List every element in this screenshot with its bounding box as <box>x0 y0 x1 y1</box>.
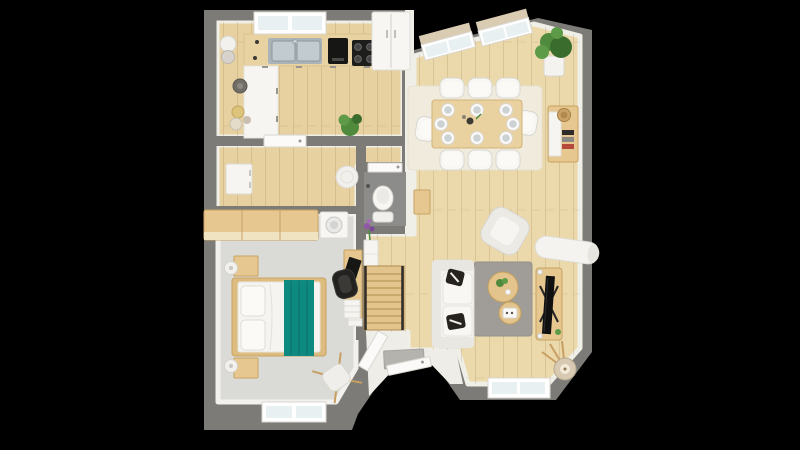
place-setting <box>442 104 455 117</box>
flower <box>370 227 375 232</box>
plant-foliage <box>339 115 350 126</box>
book <box>562 130 574 135</box>
place-setting <box>442 132 455 145</box>
knob <box>253 56 257 60</box>
wc-side-cabinet <box>414 190 430 214</box>
plant-pot <box>544 56 564 76</box>
pot-lid <box>237 83 243 89</box>
burner <box>355 56 362 63</box>
knob <box>255 40 259 44</box>
bowl <box>230 118 242 130</box>
kitchen-sink <box>268 38 322 64</box>
place-setting <box>507 118 520 131</box>
wall-kitchen-hall-right <box>306 136 402 146</box>
washing-machine <box>320 212 348 238</box>
wardrobe-front <box>204 232 318 240</box>
place-setting <box>435 118 448 131</box>
sofa-back <box>432 260 441 348</box>
fridge-handle <box>394 30 396 38</box>
dining-chair <box>440 78 464 98</box>
double-bed <box>232 278 326 356</box>
dining-chair <box>468 150 492 170</box>
wardrobe <box>204 210 318 240</box>
plant-foliage <box>535 45 549 59</box>
toilet-tank <box>373 212 393 222</box>
window-pane <box>266 406 292 418</box>
hall-pouf <box>336 166 358 188</box>
dining-chair <box>496 150 520 170</box>
book <box>562 137 574 142</box>
dresser-handle <box>249 182 251 188</box>
pillow <box>241 320 265 350</box>
hallway-door <box>264 135 306 147</box>
speaker <box>538 334 543 339</box>
hallway-door-handle <box>299 140 302 143</box>
place-setting <box>471 104 484 117</box>
toilet-seat <box>377 188 390 204</box>
plant-foliage <box>352 114 362 124</box>
window-pane <box>492 382 517 394</box>
dresser-handle <box>249 170 251 176</box>
hall-dresser <box>226 164 252 194</box>
ball-lamp <box>225 262 238 275</box>
kitchen-counter-left <box>244 66 278 138</box>
window-pane <box>520 382 545 394</box>
sink-basin-right <box>297 41 320 61</box>
tray-item <box>511 312 513 314</box>
place-setting <box>500 132 513 145</box>
tv-unit <box>536 268 562 340</box>
table-centerpiece-small <box>462 115 466 119</box>
basket-inner <box>561 112 568 119</box>
sink-basin-left <box>272 41 295 61</box>
lamp-bulb <box>564 368 567 371</box>
window-pane <box>292 16 322 30</box>
coffee-table-top <box>488 272 518 302</box>
cup <box>243 116 251 124</box>
window-pane <box>258 16 288 30</box>
pillow <box>241 286 265 316</box>
cup <box>506 290 511 295</box>
book <box>562 144 574 149</box>
ball-lamp <box>225 360 238 373</box>
living-windows <box>488 378 550 398</box>
pot-stack <box>222 51 235 64</box>
flower <box>367 219 371 223</box>
sideboard <box>548 106 578 162</box>
place-setting <box>500 104 513 117</box>
burner <box>355 44 362 51</box>
toilet-paper-holder <box>366 184 370 188</box>
coffee-table-large <box>488 272 518 302</box>
tv-stand-plant <box>555 329 561 335</box>
tray-item <box>506 312 508 314</box>
fridge-handle <box>386 30 388 38</box>
tray <box>503 308 517 318</box>
table-plant <box>502 278 508 284</box>
toilet <box>373 186 393 222</box>
plant-foliage <box>551 27 563 39</box>
speaker <box>538 270 543 275</box>
window-pane <box>296 406 322 418</box>
plant-foliage <box>550 36 572 58</box>
place-setting <box>471 132 484 145</box>
coffee-table-small <box>499 302 521 324</box>
bedroom-windows <box>262 402 326 422</box>
dining-chair <box>468 78 492 98</box>
paper-stack <box>344 300 360 318</box>
coffee-machine-tray <box>332 58 344 61</box>
sofa <box>432 260 474 348</box>
flower <box>364 223 370 229</box>
flower-stem <box>369 230 370 240</box>
floor-plan-canvas <box>0 0 800 450</box>
sofa-arm-bottom <box>432 337 474 348</box>
wc-door-handle <box>397 166 400 169</box>
fridge <box>372 12 410 70</box>
dining-chair <box>440 150 464 170</box>
kitchen-window <box>254 12 326 34</box>
dining-chair <box>496 78 520 98</box>
stair-flight <box>364 266 404 330</box>
table-centerpiece <box>467 118 474 125</box>
pot-stack <box>220 36 236 52</box>
bowl <box>232 106 244 118</box>
washer-drum-inner <box>330 221 338 229</box>
